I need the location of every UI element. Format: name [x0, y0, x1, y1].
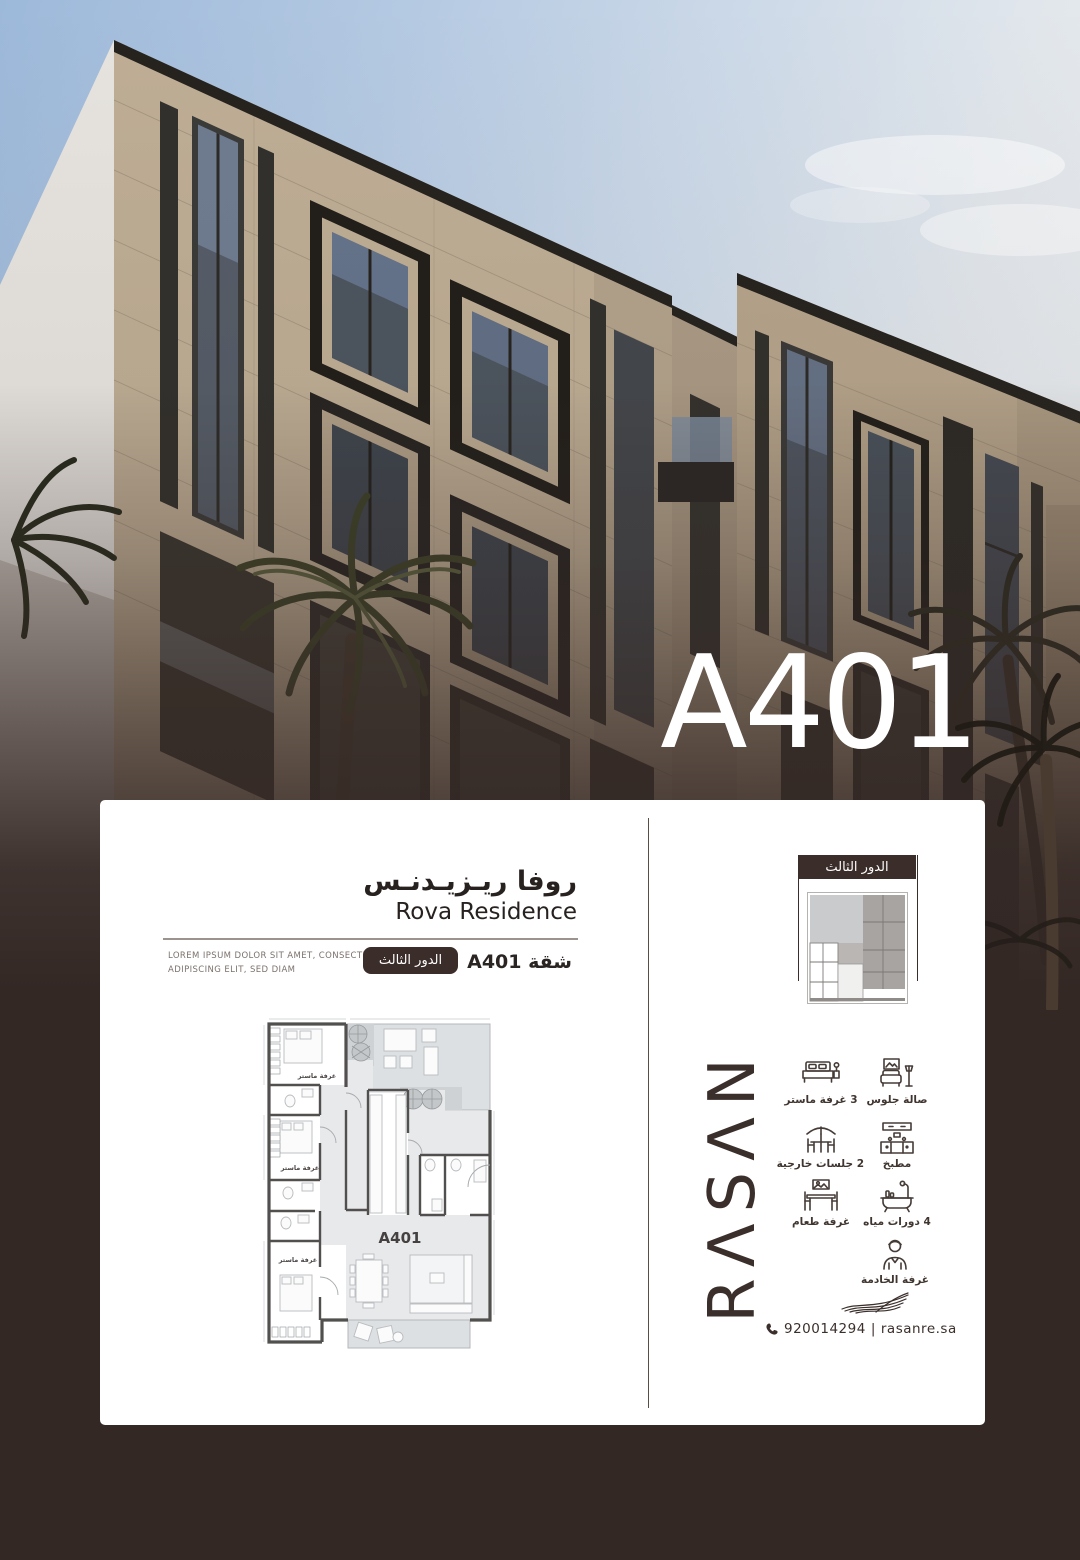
sofa-icon — [877, 1057, 917, 1091]
project-title-english: Rova Residence — [395, 899, 577, 925]
feature-label: 3 غرفة ماستر — [778, 1094, 864, 1106]
feature-label: 2 جلسات خارجية — [778, 1158, 864, 1170]
floorplan-drawing: غرفة ماستر غرفة ماستر غرفة ماستر A401 — [260, 1015, 495, 1355]
feature-maid-room: غرفة الخادمة — [852, 1237, 938, 1286]
room-label-master-2: غرفة ماستر — [280, 1164, 320, 1172]
vertical-divider — [648, 818, 649, 1408]
description-line2: ADIPISCING ELIT, SED DIAM — [168, 963, 353, 977]
phone-icon — [766, 1323, 779, 1336]
room-label-master-3: غرفة ماستر — [278, 1256, 318, 1264]
dining-icon — [801, 1179, 841, 1213]
brand-logo-rasan: RΛSΛN — [698, 1035, 768, 1335]
project-title-arabic: روفا ريـزيـدنـس — [363, 866, 577, 897]
horizontal-divider — [163, 938, 578, 940]
feature-kitchen: مطبخ — [854, 1121, 940, 1170]
feature-label: 4 دورات مياه — [854, 1216, 940, 1228]
kitchen-icon — [877, 1121, 917, 1155]
contact-phone: 920014294 — [784, 1321, 866, 1337]
description-line1: LOREM IPSUM DOLOR SIT AMET, CONSECTETUER — [168, 949, 353, 963]
feature-dining-room: غرفة طعام — [778, 1179, 864, 1228]
bath-icon — [877, 1179, 917, 1213]
contact-separator: | — [871, 1321, 876, 1337]
feature-label: غرفة الخادمة — [852, 1274, 938, 1286]
feature-living-room: صالة جلوس — [854, 1057, 940, 1106]
hero-unit-code: A401 — [660, 640, 976, 768]
contact-row: 920014294 | rasanre.sa — [766, 1321, 957, 1337]
room-label-master-1: غرفة ماستر — [297, 1072, 337, 1080]
floor-badge: الدور الثالث — [363, 947, 458, 974]
bed-icon — [801, 1057, 841, 1091]
contact-website: rasanre.sa — [881, 1321, 957, 1337]
floor-header: الدور الثالث — [798, 855, 916, 879]
info-card: روفا ريـزيـدنـس Rova Residence LOREM IPS… — [100, 800, 985, 1425]
feature-label: صالة جلوس — [854, 1094, 940, 1106]
feature-label: غرفة طعام — [778, 1216, 864, 1228]
unit-label: شقة A401 — [467, 951, 572, 973]
floor-thumbnail-plan — [807, 892, 908, 1004]
plan-unit-label: A401 — [379, 1229, 422, 1247]
umbrella-icon — [801, 1121, 841, 1155]
feature-outdoor-seating: 2 جلسات خارجية — [778, 1121, 864, 1170]
wave-logo — [840, 1289, 910, 1317]
feature-bathrooms: 4 دورات مياه — [854, 1179, 940, 1228]
feature-master-bedrooms: 3 غرفة ماستر — [778, 1057, 864, 1106]
maid-icon — [875, 1237, 915, 1271]
description-text: LOREM IPSUM DOLOR SIT AMET, CONSECTETUER… — [168, 949, 353, 977]
feature-label: مطبخ — [854, 1158, 940, 1170]
